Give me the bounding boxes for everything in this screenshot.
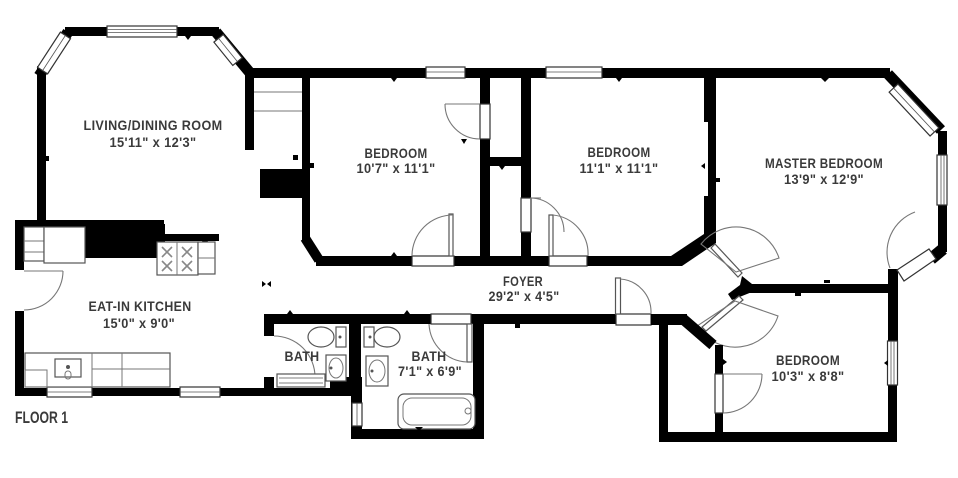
svg-text:BEDROOM: BEDROOM	[776, 352, 840, 368]
svg-text:FOYER: FOYER	[503, 273, 543, 289]
svg-text:FLOOR 1: FLOOR 1	[15, 408, 68, 427]
svg-text:10'7" x 11'1": 10'7" x 11'1"	[357, 160, 436, 176]
svg-text:EAT-IN KITCHEN: EAT-IN KITCHEN	[89, 298, 192, 314]
svg-text:MASTER BEDROOM: MASTER BEDROOM	[765, 155, 883, 171]
svg-text:BATH: BATH	[285, 348, 320, 364]
svg-text:LIVING/DINING ROOM: LIVING/DINING ROOM	[84, 117, 223, 133]
svg-text:15'0" x 9'0": 15'0" x 9'0"	[103, 315, 175, 331]
svg-text:15'11" x 12'3": 15'11" x 12'3"	[110, 134, 197, 150]
svg-text:BATH: BATH	[412, 348, 447, 364]
svg-text:BEDROOM: BEDROOM	[365, 145, 428, 161]
svg-text:29'2" x 4'5": 29'2" x 4'5"	[489, 288, 560, 304]
svg-text:13'9" x 12'9": 13'9" x 12'9"	[784, 171, 864, 187]
svg-text:11'1" x 11'1": 11'1" x 11'1"	[580, 160, 659, 176]
svg-text:BEDROOM: BEDROOM	[588, 144, 651, 160]
svg-text:7'1" x 6'9": 7'1" x 6'9"	[398, 363, 462, 379]
svg-text:10'3" x 8'8": 10'3" x 8'8"	[772, 368, 845, 384]
